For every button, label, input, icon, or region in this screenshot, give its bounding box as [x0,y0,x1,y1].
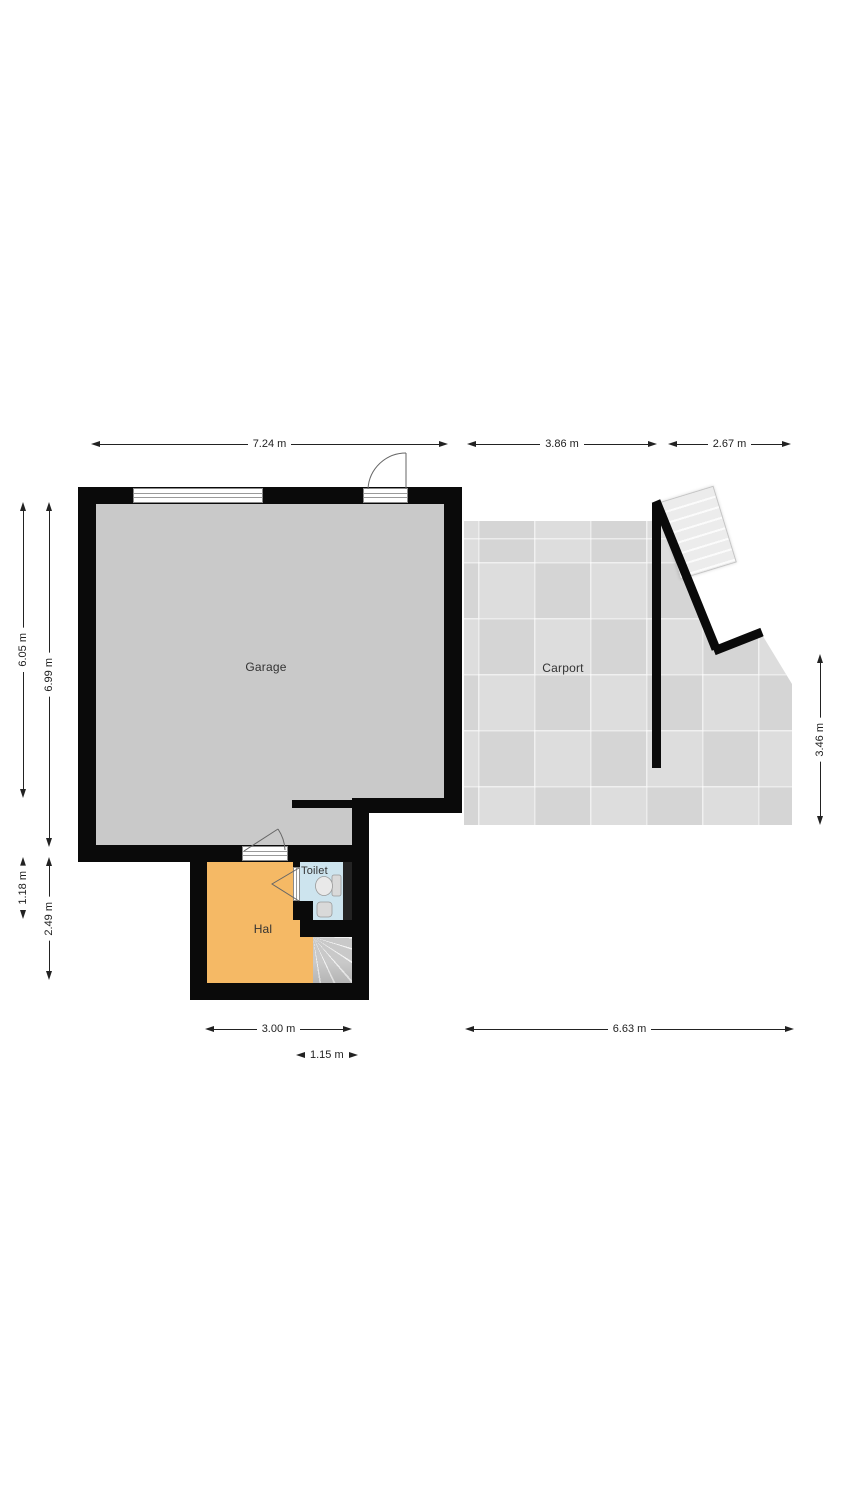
toilet-doorjamb-bottom [293,901,300,920]
toilet-duct-panel [343,862,352,920]
floorplan-canvas: Garage Carport Hal Toilet 7.24 m 3.86 m … [0,0,844,1500]
dimension-bottom-stairs: 1.15 m [296,1044,352,1066]
hal-left-wall [190,845,207,1000]
dimension-label: 2.67 m [708,439,752,450]
toilet-door-threshold [293,867,300,901]
dimension-bottom-carport: 6.63 m [465,1018,794,1040]
garage-label: Garage [245,660,286,674]
carport-floor [464,521,792,825]
dimension-left-garage-outer: 6.99 m [38,502,60,847]
garage-stub-wall [292,800,352,808]
dimension-right-carport: 3.46 m [809,654,831,825]
dimension-label: 7.24 m [248,439,292,450]
dimension-left-hal: 2.49 m [38,857,60,980]
dimension-label: 3.00 m [257,1024,301,1035]
hal-bottom-wall [190,983,369,1000]
toilet-bottom-wall [313,920,352,937]
dimension-top-garage: 7.24 m [91,433,448,455]
dimension-label: 6.99 m [44,653,55,697]
garage-entry-door-arc [368,453,406,489]
dimension-top-carport: 3.86 m [467,433,657,455]
toilet-stub-wall [300,901,313,937]
dimension-label: 1.18 m [18,866,29,910]
dimension-left-toilet: 1.18 m [12,857,34,915]
garage-left-wall [78,487,96,862]
hal-right-wall [352,798,369,1000]
dimension-label: 6.05 m [18,628,29,672]
toilet-label: Toilet [301,865,328,877]
garage-right-wall [444,487,462,813]
hal-door-threshold [242,846,288,861]
garage-floor [96,504,444,798]
dimension-label: 6.63 m [608,1024,652,1035]
dimension-bottom-hal: 3.00 m [205,1018,352,1040]
dimension-label: 3.86 m [540,439,584,450]
carport-label: Carport [542,661,583,675]
carport-middle-wall [652,503,661,768]
winder-stairs-icon [313,937,352,983]
dimension-top-stairs: 2.67 m [668,433,791,455]
dimension-label: 2.49 m [44,897,55,941]
hal-floor [207,862,293,983]
hal-floor-strip1 [293,920,300,983]
dimension-left-garage-inner: 6.05 m [12,502,34,798]
garage-window [133,488,263,503]
hal-label: Hal [254,922,273,936]
dimension-label: 3.46 m [815,718,826,762]
garage-entry-door-threshold [363,488,408,503]
garage-bottom-wall [78,845,369,862]
hal-floor-strip2 [300,937,313,983]
dimension-label: 1.15 m [305,1050,349,1061]
